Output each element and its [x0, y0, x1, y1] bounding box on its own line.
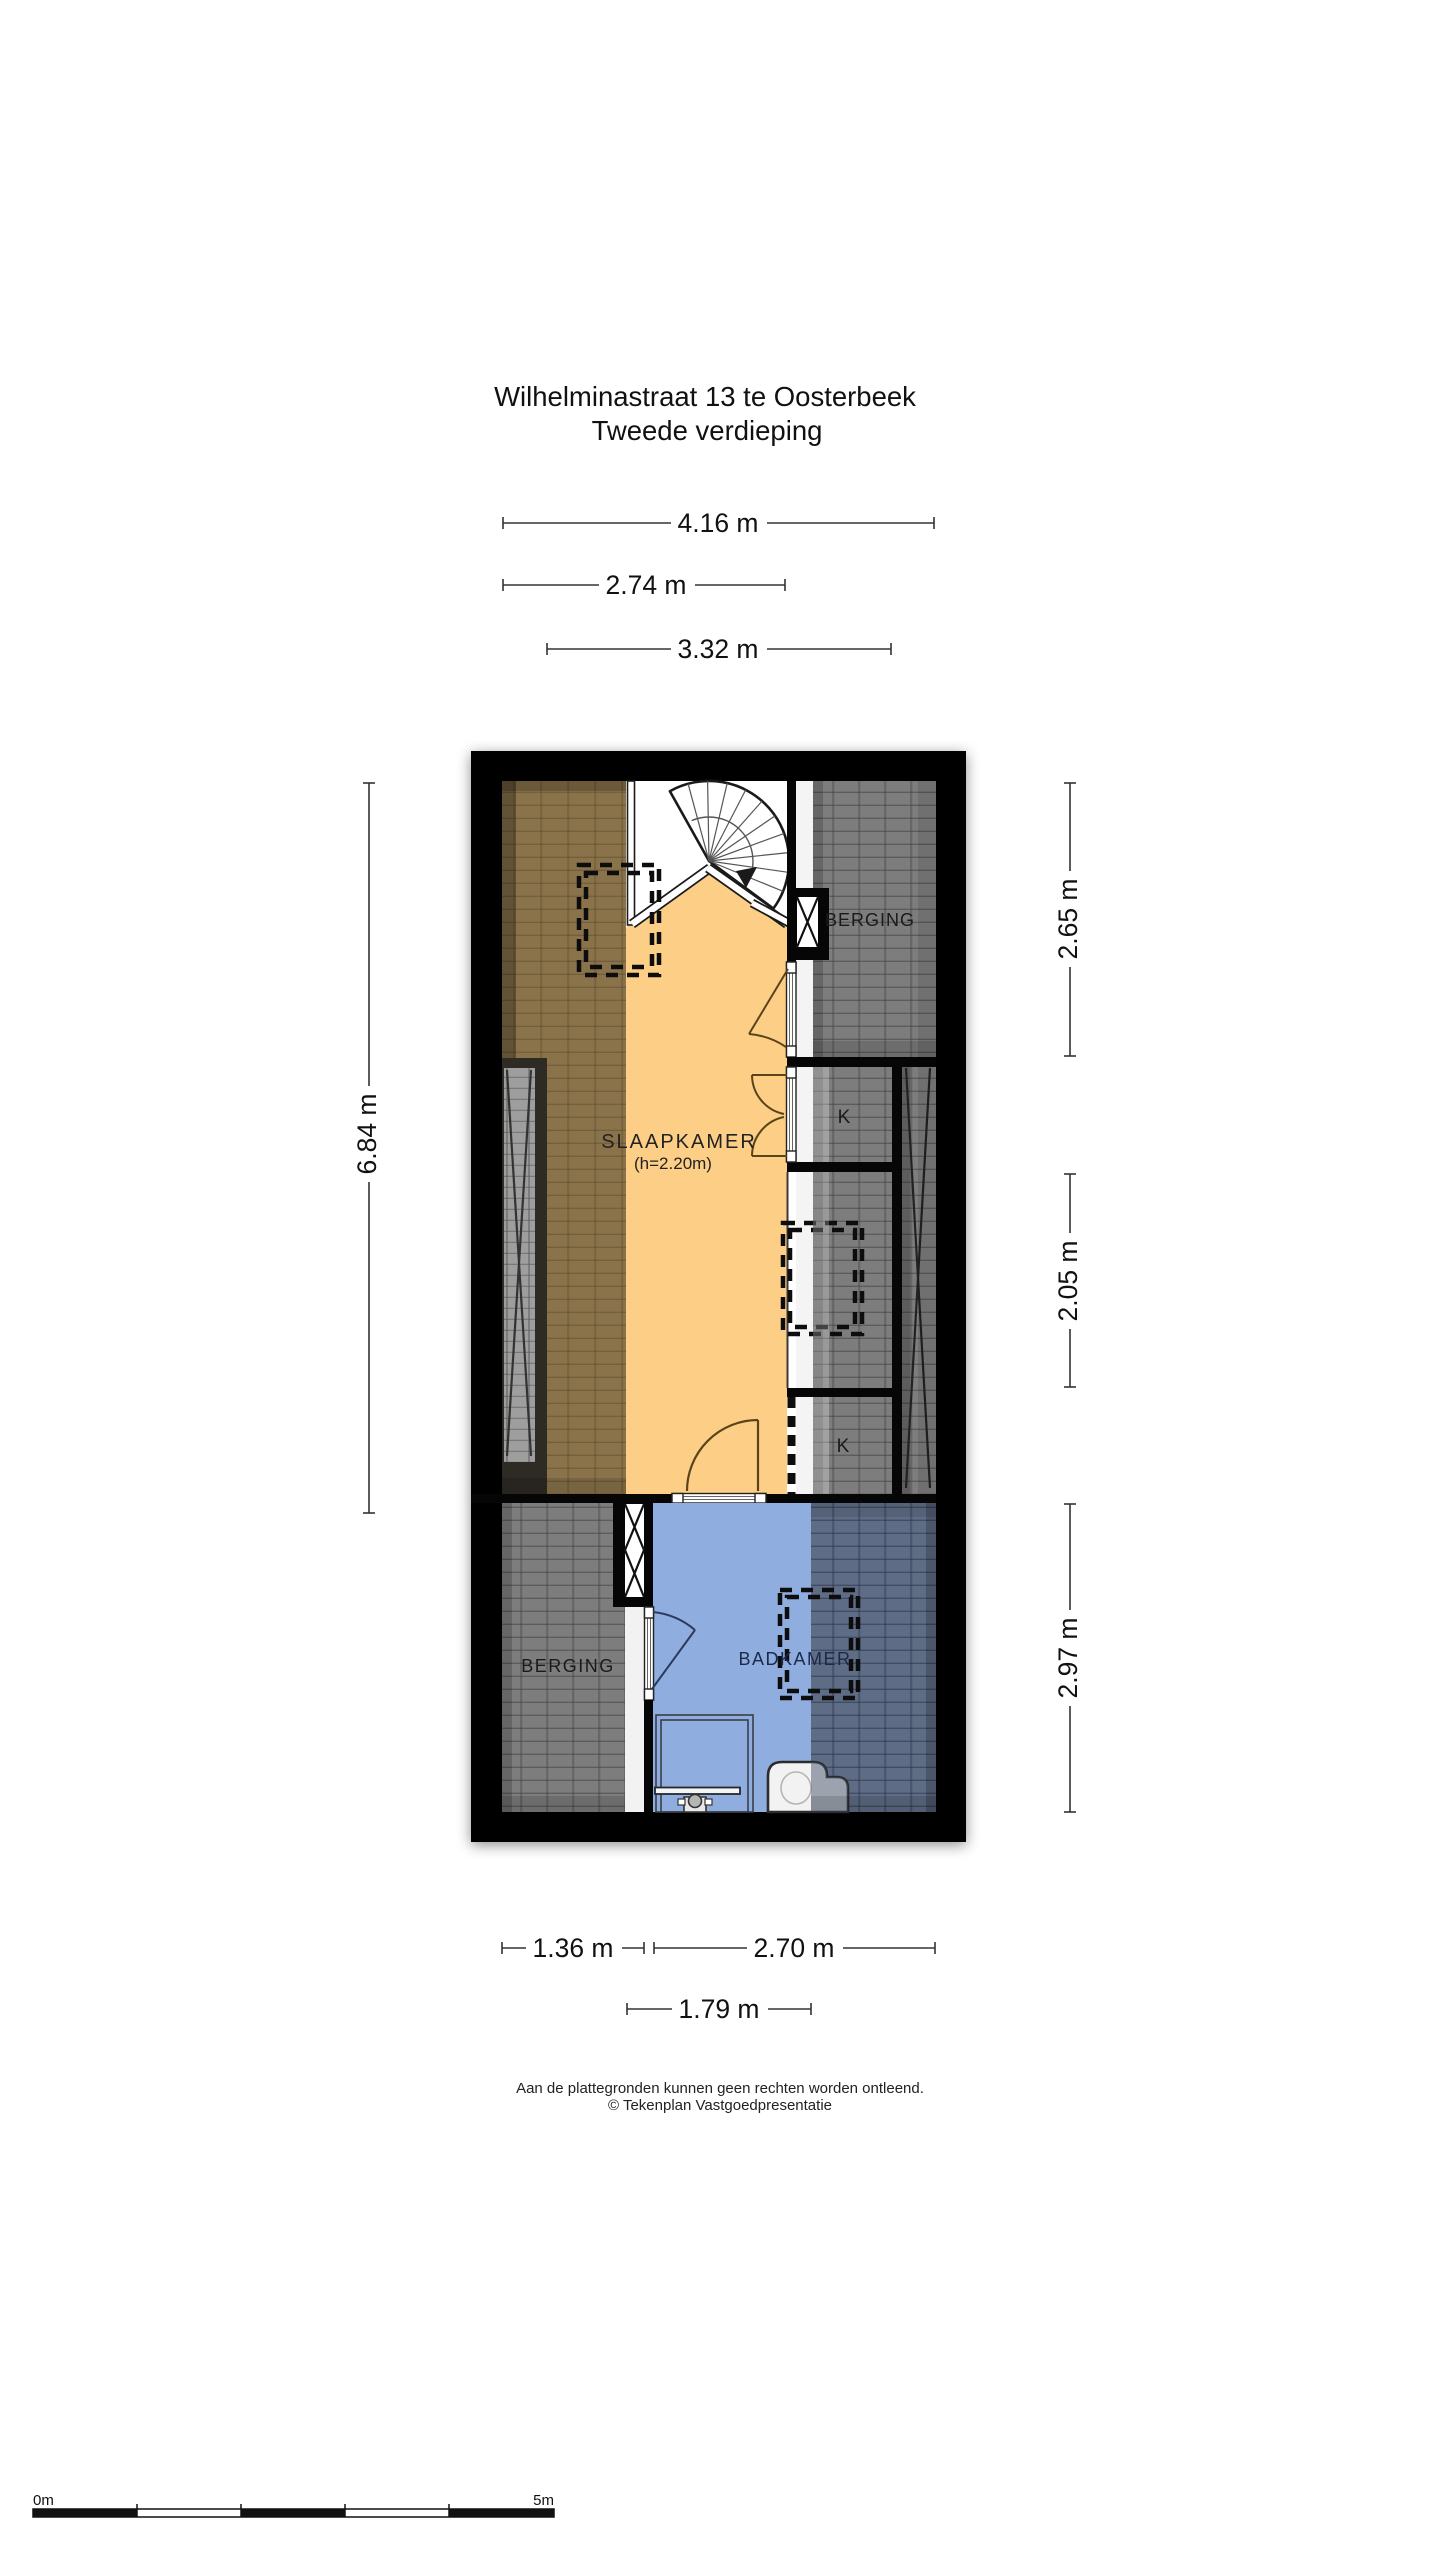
svg-text:6.84 m: 6.84 m: [352, 1093, 382, 1174]
svg-text:SLAAPKAMER: SLAAPKAMER: [601, 1131, 757, 1153]
svg-text:2.74 m: 2.74 m: [605, 570, 686, 600]
svg-text:(h=2.20m): (h=2.20m): [634, 1154, 712, 1173]
svg-text:0m: 0m: [33, 2492, 54, 2509]
svg-text:3.32 m: 3.32 m: [677, 634, 758, 664]
svg-text:BERGING: BERGING: [521, 1656, 615, 1676]
svg-text:Tweede verdieping: Tweede verdieping: [592, 415, 823, 446]
svg-text:2.05 m: 2.05 m: [1053, 1240, 1083, 1321]
svg-text:© Tekenplan Vastgoedpresentati: © Tekenplan Vastgoedpresentatie: [608, 2097, 832, 2114]
svg-text:1.79 m: 1.79 m: [678, 1994, 759, 2024]
svg-text:BADKAMER: BADKAMER: [738, 1649, 851, 1669]
svg-text:4.16 m: 4.16 m: [677, 508, 758, 538]
svg-text:5m: 5m: [533, 2492, 554, 2509]
svg-text:Aan de plattegronden kunnen ge: Aan de plattegronden kunnen geen rechten…: [516, 2080, 924, 2097]
svg-text:K: K: [838, 1107, 851, 1128]
svg-text:Wilhelminastraat 13 te Oosterb: Wilhelminastraat 13 te Oosterbeek: [494, 381, 916, 412]
svg-text:2.70 m: 2.70 m: [753, 1933, 834, 1963]
svg-text:2.97 m: 2.97 m: [1053, 1617, 1083, 1698]
svg-text:K: K: [837, 1436, 850, 1457]
svg-text:2.65 m: 2.65 m: [1053, 878, 1083, 959]
svg-text:1.36 m: 1.36 m: [532, 1933, 613, 1963]
svg-text:BERGING: BERGING: [825, 910, 915, 930]
